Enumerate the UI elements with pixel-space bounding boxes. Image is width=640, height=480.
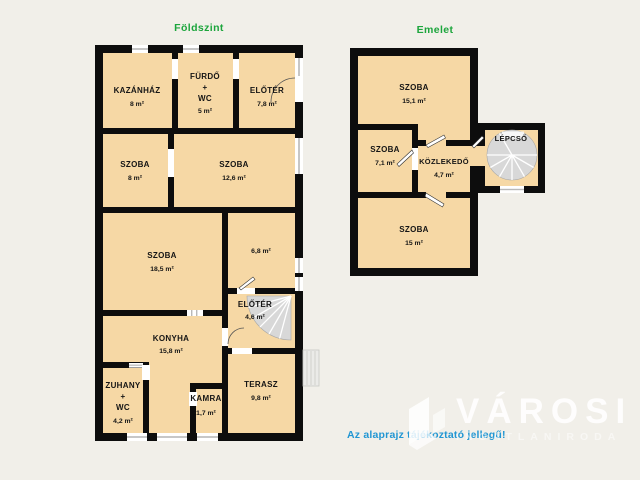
room-area: 18,5 m²: [150, 266, 174, 273]
wall-kamra-left: [190, 383, 196, 433]
room-area: 15,8 m²: [159, 348, 183, 355]
agency-watermark: VÁROSI INGATLANIRODA: [407, 393, 632, 455]
room-label: KÖZLEKEDŐ: [419, 157, 469, 166]
room-area: 5 m²: [198, 108, 213, 115]
room-label: WC: [198, 94, 212, 103]
room-label: LÉPCSŐ: [495, 134, 528, 143]
room-area: 8 m²: [130, 101, 145, 108]
wall-bottom-a: [358, 192, 426, 198]
room-area: 6,8 m²: [251, 248, 271, 255]
room-label: SZOBA: [399, 225, 429, 234]
upper-floor-title: Emelet: [350, 24, 520, 36]
room-label: WC: [116, 403, 130, 412]
room-szoba-185: [103, 213, 222, 310]
room-area: 4,6 m²: [245, 314, 265, 321]
room-area: 15,1 m²: [402, 98, 426, 105]
window-marker: [500, 186, 524, 193]
room-label: ELŐTÉR: [238, 300, 272, 309]
room-label: SZOBA: [370, 145, 400, 154]
floorplan-page: Földszint Emelet: [0, 0, 640, 480]
room-label: SZOBA: [219, 160, 249, 169]
room-label: FÜRDŐ: [190, 72, 220, 81]
room-szoba-8: [103, 134, 168, 207]
watermark-brand: VÁROSI: [456, 393, 632, 432]
wall-bottom-b: [446, 192, 470, 198]
ground-floor-plan: KAZÁNHÁZ 8 m² FÜRDŐ + WC 5 m² ELŐTÉR 7,8…: [95, 45, 323, 441]
upper-floor-plan: SZOBA 15,1 m² SZOBA 7,1 m² KÖZLEKEDŐ 4,7…: [350, 48, 545, 276]
exterior-steps: [303, 350, 319, 386]
agency-logo-icon: [407, 393, 447, 455]
room-label: SZOBA: [120, 160, 150, 169]
room-label: +: [121, 392, 126, 401]
room-area: 7,8 m²: [257, 101, 277, 108]
room-area: 8 m²: [128, 175, 143, 182]
ground-floor-title: Földszint: [95, 22, 303, 34]
room-area: 12,6 m²: [222, 175, 246, 182]
disclaimer-note: Az alaprajz tájékoztató jellegű!: [347, 429, 506, 441]
room-area: 4,7 m²: [434, 172, 454, 179]
wall-kozlekedo-top-a: [418, 140, 426, 146]
wall-szoba151-szoba71: [358, 124, 418, 130]
room-label: TERASZ: [244, 380, 278, 389]
room-area: 7,1 m²: [375, 160, 395, 167]
room-szoba-126: [174, 134, 295, 207]
room-area: 1,7 m²: [196, 410, 216, 417]
room-label: KAZÁNHÁZ: [114, 86, 161, 95]
room-label: +: [203, 83, 208, 92]
room-terasz: [228, 354, 295, 433]
room-area: 9,8 m²: [251, 395, 271, 402]
room-label: ZUHANY: [105, 381, 140, 390]
room-label: KONYHA: [153, 334, 189, 343]
wall-kozlekedo-top-b: [446, 140, 470, 146]
room-area: 4,2 m²: [113, 418, 133, 425]
room-label: KAMRA: [190, 394, 221, 403]
room-label: SZOBA: [399, 83, 429, 92]
room-label: SZOBA: [147, 251, 177, 260]
room-label: ELŐTÉR: [250, 86, 284, 95]
room-area: 15 m²: [405, 240, 423, 247]
